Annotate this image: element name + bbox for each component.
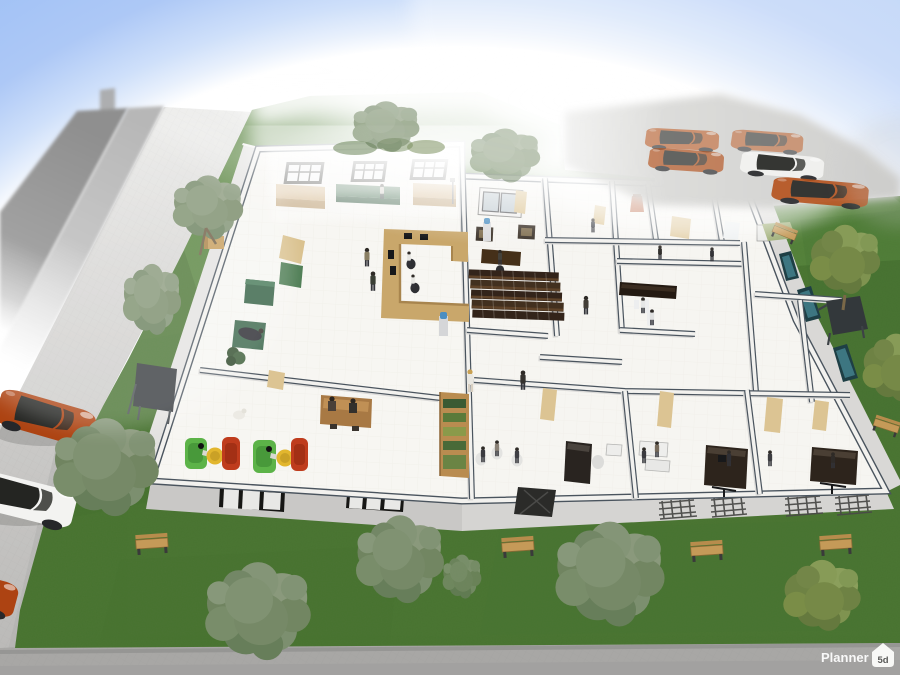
svg-text:Planner: Planner <box>821 650 869 665</box>
svg-text:5d: 5d <box>877 655 888 666</box>
